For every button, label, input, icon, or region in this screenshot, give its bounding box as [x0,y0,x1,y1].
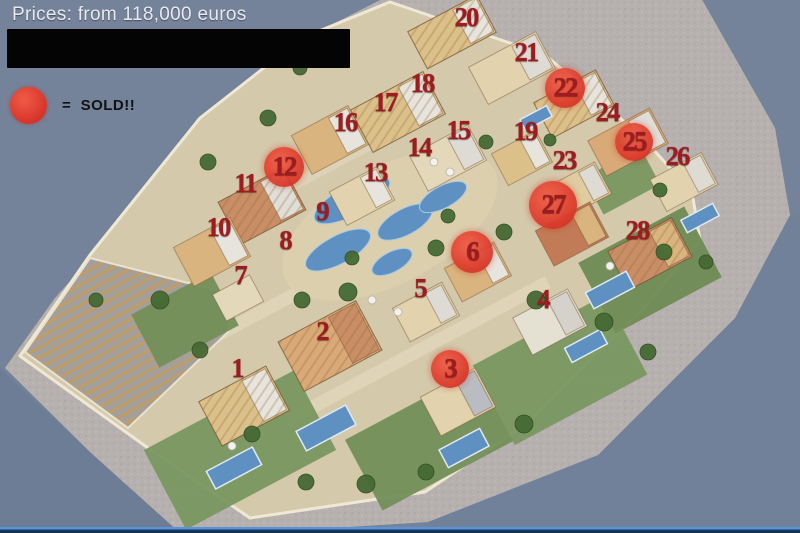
price-label: Prices: from 118,000 euros [12,4,247,26]
unit-label-21: 21 [515,39,538,66]
unit-label-5: 5 [414,275,426,302]
bottom-border-bars [0,527,800,533]
unit-label-28: 28 [626,217,649,244]
unit-label-25: 25 [623,128,646,155]
sold-legend-label: = SOLD!! [62,97,135,114]
annotation-overlay: Prices: from 118,000 euros = SOLD!! 1234… [0,0,800,533]
unit-label-12: 12 [273,153,296,180]
unit-label-11: 11 [234,170,256,197]
unit-label-18: 18 [411,70,434,97]
unit-label-27: 27 [542,191,565,218]
unit-label-3: 3 [444,355,456,382]
unit-label-13: 13 [364,159,387,186]
unit-label-7: 7 [234,262,246,289]
unit-label-16: 16 [334,109,357,136]
unit-label-24: 24 [596,99,619,126]
unit-label-14: 14 [408,134,431,161]
unit-label-10: 10 [207,214,230,241]
sold-legend-circle-icon [10,87,47,124]
unit-label-26: 26 [666,143,689,170]
unit-label-2: 2 [316,318,328,345]
site-plan-image: Prices: from 118,000 euros = SOLD!! 1234… [0,0,800,533]
unit-label-17: 17 [374,89,397,116]
unit-label-22: 22 [554,74,577,101]
unit-label-4: 4 [537,286,549,313]
unit-label-6: 6 [466,238,478,265]
redaction-bar [7,29,350,68]
unit-label-23: 23 [553,147,576,174]
unit-label-19: 19 [514,118,537,145]
unit-label-8: 8 [279,227,291,254]
unit-label-9: 9 [316,198,328,225]
unit-label-20: 20 [455,4,478,31]
unit-label-15: 15 [447,117,470,144]
unit-label-1: 1 [231,355,243,382]
